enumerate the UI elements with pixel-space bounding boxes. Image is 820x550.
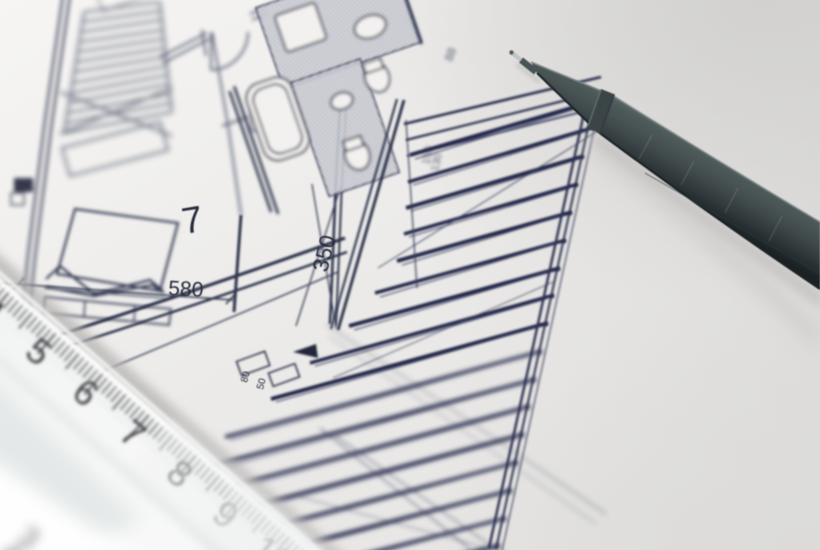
svg-text:580: 580: [168, 277, 204, 302]
